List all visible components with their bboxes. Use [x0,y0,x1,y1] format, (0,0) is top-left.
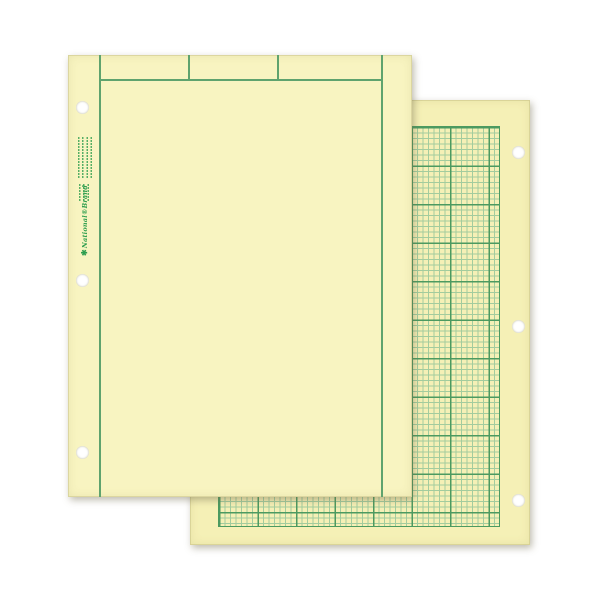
star-icon: ✱ [79,249,89,256]
product-photo: ✱National®Brand [0,0,600,600]
header-rule-line [99,79,383,81]
punch-hole [76,446,89,459]
punch-hole [512,494,525,507]
right-margin-line [381,55,383,497]
brand-logo-text-rotated: ✱National®Brand [79,185,89,256]
brand-logo: ✱National®Brand [77,202,97,256]
header-box-divider [188,55,190,81]
punch-hole [76,101,89,114]
left-margin-line [99,55,101,497]
punch-hole [512,146,525,159]
plain-sheet: ✱National®Brand [68,55,412,497]
vertical-fine-print-block [78,137,95,179]
punch-hole [76,274,89,287]
header-box-divider [277,55,279,81]
punch-hole [512,320,525,333]
brand-logo-text: National®Brand [81,185,89,248]
